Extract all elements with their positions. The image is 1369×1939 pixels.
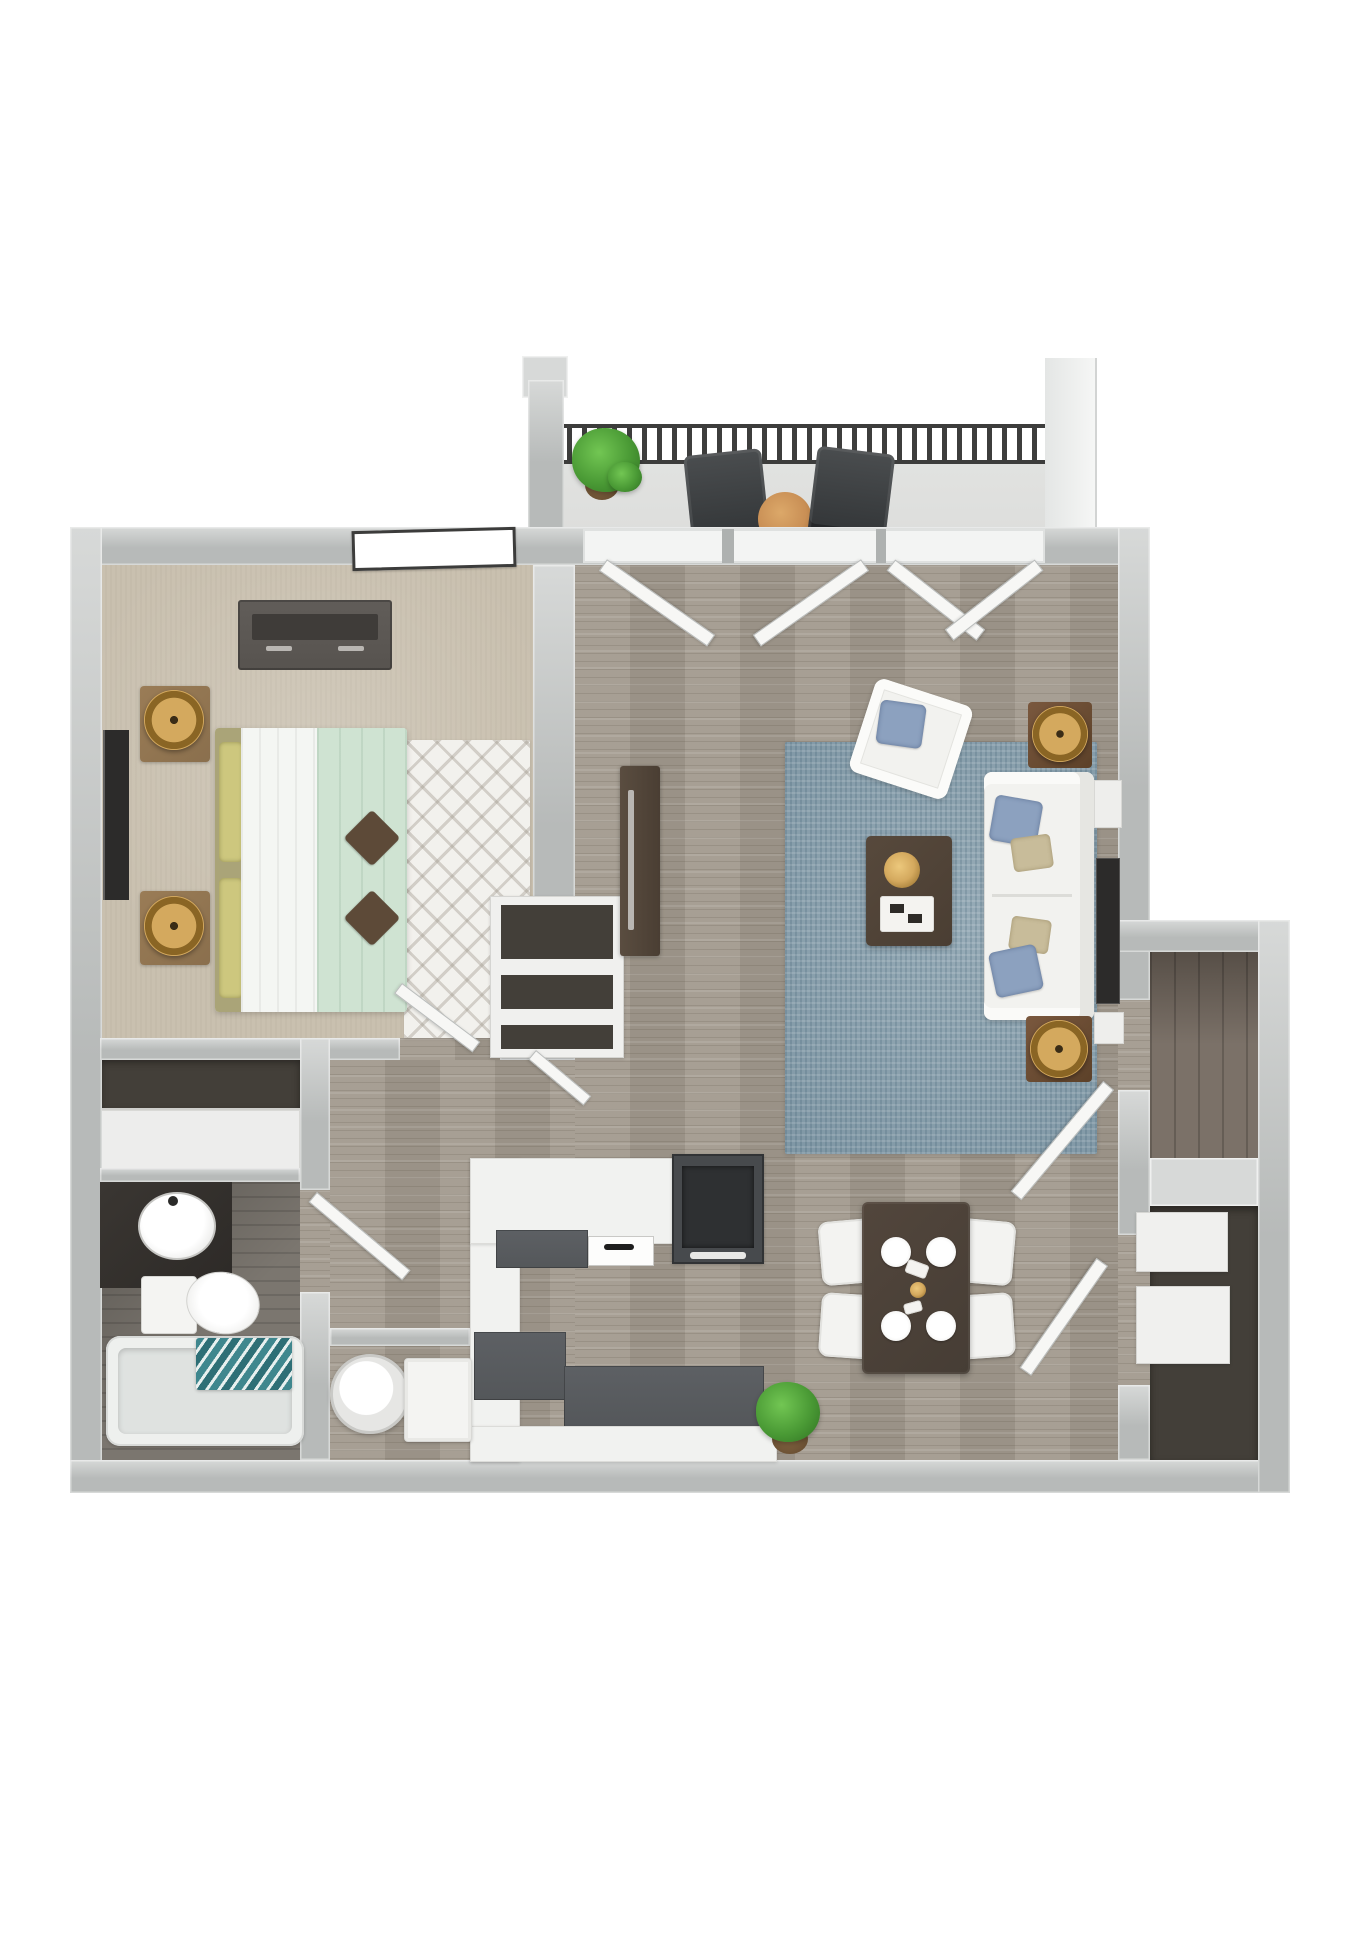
armchair-pillow [875, 699, 927, 749]
oven-handle [690, 1252, 746, 1259]
table-napkin [903, 1300, 923, 1315]
door-frame-post-left [722, 529, 734, 563]
dresser-handle-left [266, 646, 292, 651]
linen-closet-shelf-1 [501, 959, 613, 975]
bed [215, 728, 407, 1012]
bed-duvet [317, 728, 407, 1012]
bed-pillow-1 [219, 742, 243, 862]
wall-left [70, 527, 102, 1493]
kitchen-sink [588, 1236, 654, 1266]
sofa-seam [992, 894, 1072, 897]
tray-item-dark [890, 904, 904, 913]
kitchen-counter-dark-strip [496, 1230, 588, 1268]
wall-bathroom-right-lower [300, 1292, 330, 1460]
kitchen-bottom-counter [470, 1426, 777, 1462]
coffee-table [866, 836, 952, 946]
kitchen-bottom-counter-top [564, 1366, 764, 1428]
floor-plan [0, 0, 1369, 1939]
media-console [620, 766, 660, 956]
storage-room-floor [1150, 952, 1258, 1158]
bathroom-faucet [168, 1196, 178, 1206]
wall-closet-bathroom [100, 1168, 300, 1182]
kitchen-corner-counter [474, 1332, 566, 1400]
table-centerpiece [910, 1282, 926, 1298]
kitchen-range [672, 1154, 764, 1264]
place-setting-4 [926, 1311, 956, 1341]
linen-closet-interior [501, 905, 613, 1049]
bed-pillow-2 [219, 878, 243, 998]
washer [404, 1358, 472, 1442]
dresser-top [252, 614, 378, 640]
wall-bedroom-bottom-left [100, 1038, 400, 1060]
wall-bathroom-right-upper [300, 1038, 330, 1190]
place-setting-2 [926, 1237, 956, 1267]
entry-closet-shelf-top [1136, 1212, 1228, 1272]
wall-extension-divider [1150, 1158, 1258, 1206]
bedroom-closet-sliding-door [100, 1108, 300, 1170]
wall-extension-right [1258, 920, 1290, 1493]
entry-threshold [583, 529, 1045, 563]
linen-closet [490, 896, 624, 1058]
balcony-pillar [528, 380, 564, 530]
entry-closet-shelf-bottom [1136, 1286, 1230, 1364]
wall-shelf-above-tv [1094, 780, 1122, 828]
wall-shelf-below-tv [1094, 1012, 1124, 1044]
place-setting-3 [881, 1311, 911, 1341]
dresser-handle-right [338, 646, 364, 651]
balcony-right-wall [1045, 358, 1097, 533]
coffee-table-tray [880, 896, 934, 932]
living-room-tv [1096, 858, 1120, 1004]
bedroom-door-threshold [400, 1038, 500, 1060]
patio-plant-leaf [608, 462, 642, 492]
table-runner-item [904, 1259, 929, 1280]
bedroom-tv [103, 730, 129, 900]
wall-bottom [70, 1460, 1290, 1493]
floor-lamp-bottom [1030, 1020, 1088, 1078]
bath-towel [196, 1338, 292, 1390]
sofa [984, 772, 1094, 1020]
water-heater [330, 1354, 410, 1434]
sofa-pillow-tan-top [1010, 833, 1054, 872]
door-frame-post-right [876, 529, 886, 563]
tray-item-dark-2 [908, 914, 922, 923]
wall-right-lower [1118, 1385, 1150, 1460]
bedroom-closet-interior [100, 1058, 300, 1108]
coffee-table-bowl [884, 852, 920, 888]
wall-utility [330, 1328, 470, 1346]
table-lamp-bottom [144, 896, 204, 956]
bed-sheet [241, 728, 317, 1012]
table-lamp-top [144, 690, 204, 750]
range-cooktop [682, 1166, 754, 1248]
dining-table [862, 1202, 970, 1374]
bedroom-dresser [238, 600, 392, 670]
media-console-handle [628, 790, 634, 930]
bedroom-window [352, 527, 517, 571]
sofa-pillow-blue-bottom [988, 944, 1045, 999]
kitchen-plant-icon [756, 1382, 820, 1442]
floor-lamp-top [1032, 706, 1088, 762]
kitchen-faucet [604, 1244, 634, 1250]
linen-closet-shelf-2 [501, 1009, 613, 1025]
